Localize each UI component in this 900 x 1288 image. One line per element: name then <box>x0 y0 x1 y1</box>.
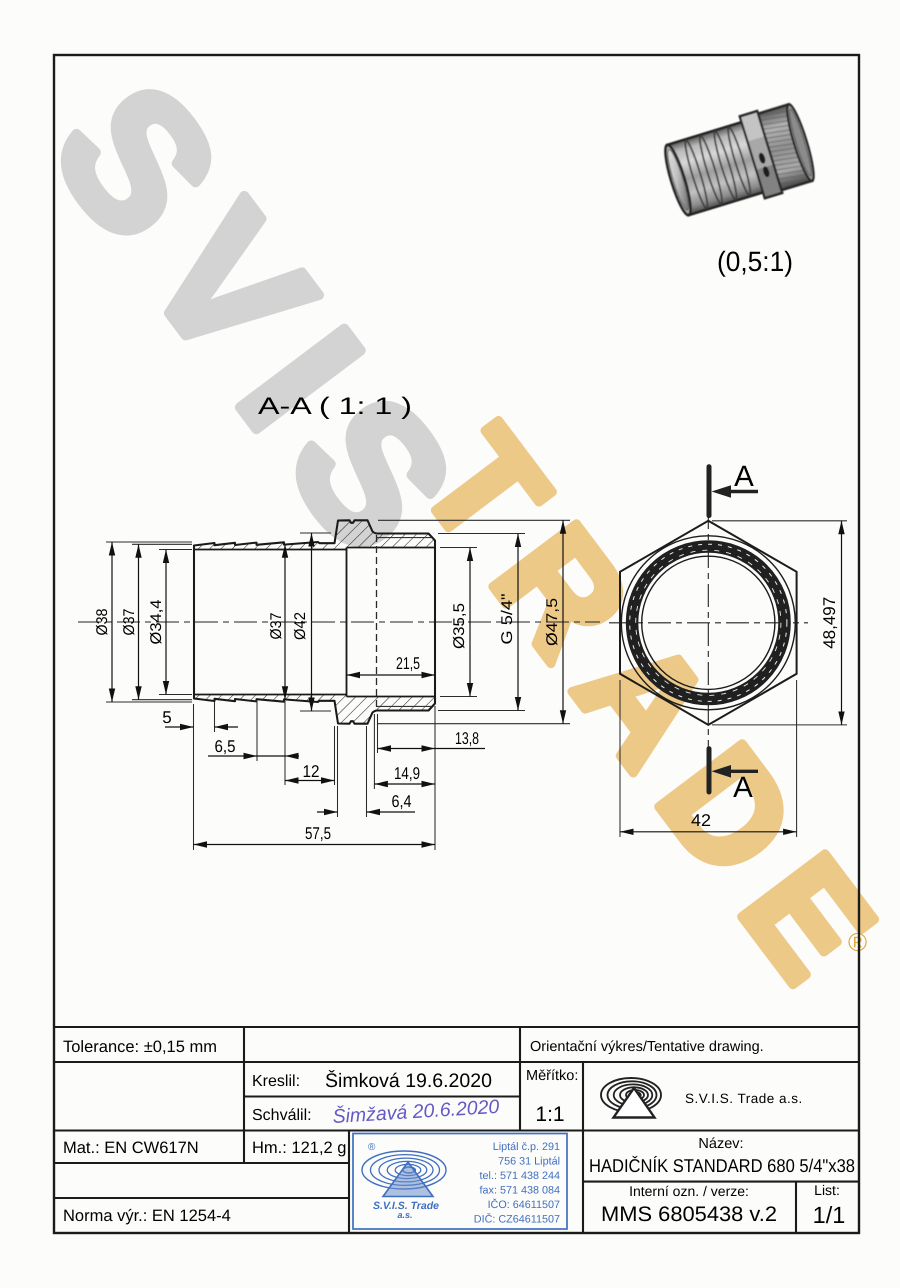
svg-text:Mat.: EN CW617N: Mat.: EN CW617N <box>63 1139 199 1157</box>
svg-text:12: 12 <box>303 762 320 781</box>
svg-text:13,8: 13,8 <box>455 729 479 748</box>
svg-text:A: A <box>733 771 753 804</box>
svg-text:HADIČNÍK STANDARD 680 5/4"x38: HADIČNÍK STANDARD 680 5/4"x38 <box>589 1155 855 1176</box>
svg-text:Interní ozn. / verze:: Interní ozn. / verze: <box>629 1183 749 1199</box>
svg-text:6,4: 6,4 <box>392 792 412 811</box>
svg-text:®: ® <box>848 927 867 957</box>
svg-text:(0,5:1): (0,5:1) <box>717 246 793 277</box>
svg-text:Ø37: Ø37 <box>268 613 285 640</box>
svg-text:Tolerance: ±0,15 mm: Tolerance: ±0,15 mm <box>63 1038 217 1056</box>
svg-text:tel.: 571 438 244: tel.: 571 438 244 <box>480 1170 560 1182</box>
svg-text:5: 5 <box>162 708 171 727</box>
svg-text:IČO: 64611507: IČO: 64611507 <box>488 1198 560 1211</box>
svg-text:Norma výr.: EN 1254-4: Norma výr.: EN 1254-4 <box>63 1207 231 1225</box>
svg-text:fax: 571 438 084: fax: 571 438 084 <box>480 1185 560 1197</box>
svg-text:DIČ: CZ64611507: DIČ: CZ64611507 <box>474 1213 560 1226</box>
svg-text:21,5: 21,5 <box>396 654 420 673</box>
svg-text:Ø34,4: Ø34,4 <box>148 599 165 644</box>
svg-text:Ø35,5: Ø35,5 <box>451 603 468 649</box>
svg-text:6,5: 6,5 <box>215 737 236 756</box>
svg-text:a.s.: a.s. <box>397 1210 412 1220</box>
svg-text:Hm.: 121,2 g: Hm.: 121,2 g <box>252 1139 346 1157</box>
svg-text:48,497: 48,497 <box>820 597 839 649</box>
svg-text:Schválil:: Schválil: <box>252 1107 312 1124</box>
svg-text:Kreslil:: Kreslil: <box>252 1073 300 1090</box>
svg-text:14,9: 14,9 <box>394 764 420 783</box>
svg-text:Ø37: Ø37 <box>121 609 138 636</box>
svg-text:G 5/4": G 5/4" <box>499 594 516 645</box>
svg-text:1:1: 1:1 <box>535 1103 564 1126</box>
svg-text:Ø38: Ø38 <box>94 609 111 636</box>
svg-text:Název:: Název: <box>698 1136 743 1152</box>
svg-text:Šimková 19.6.2020: Šimková 19.6.2020 <box>325 1069 492 1092</box>
svg-text:756 31 Liptál: 756 31 Liptál <box>498 1156 560 1168</box>
svg-text:Ø42: Ø42 <box>292 612 309 640</box>
svg-text:MMS 6805438 v.2: MMS 6805438 v.2 <box>601 1203 777 1226</box>
svg-text:42: 42 <box>691 811 711 830</box>
svg-text:Orientační výkres/Tentative dr: Orientační výkres/Tentative drawing. <box>530 1039 764 1055</box>
svg-text:Liptál č.p. 291: Liptál č.p. 291 <box>493 1141 560 1153</box>
svg-text:1/1: 1/1 <box>813 1202 846 1228</box>
svg-text:A: A <box>734 460 754 493</box>
svg-text:A-A ( 1: 1 ): A-A ( 1: 1 ) <box>258 393 412 420</box>
svg-text:List:: List: <box>814 1182 840 1198</box>
svg-text:S.V.I.S. Trade a.s.: S.V.I.S. Trade a.s. <box>685 1091 803 1106</box>
svg-text:Měřítko:: Měřítko: <box>526 1068 578 1084</box>
svg-text:Ø47,5: Ø47,5 <box>544 598 561 646</box>
svg-text:57,5: 57,5 <box>305 824 331 843</box>
svg-text:®: ® <box>368 1142 376 1153</box>
